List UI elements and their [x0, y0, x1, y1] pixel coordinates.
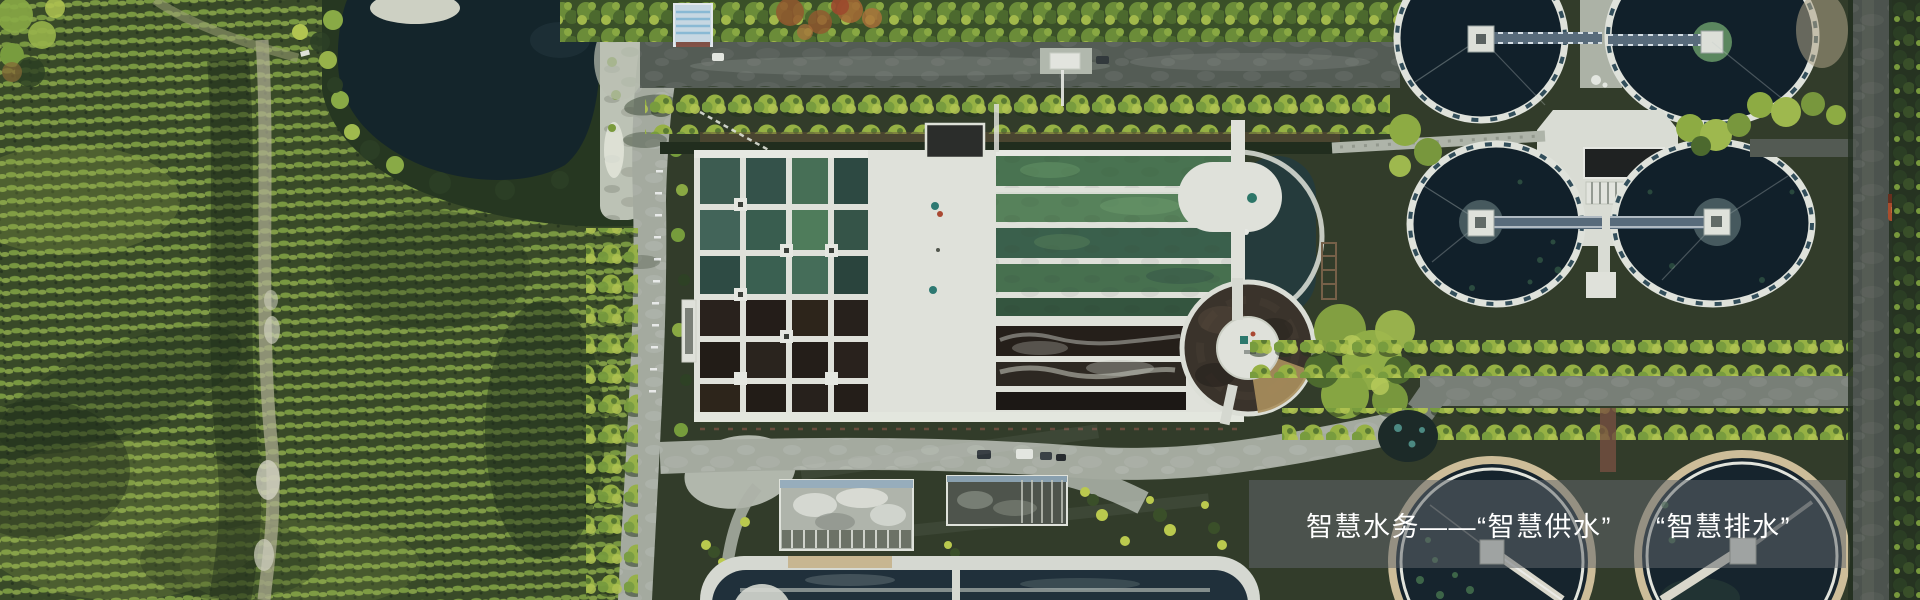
hero-banner: 智慧水务——“智慧供水” “智慧排水”	[0, 0, 1920, 600]
caption-overlay: 智慧水务——“智慧供水” “智慧排水”	[1249, 480, 1846, 568]
caption-segment-2: “智慧排水”	[1656, 505, 1791, 544]
caption-segment-1: 智慧水务——“智慧供水”	[1306, 505, 1612, 544]
